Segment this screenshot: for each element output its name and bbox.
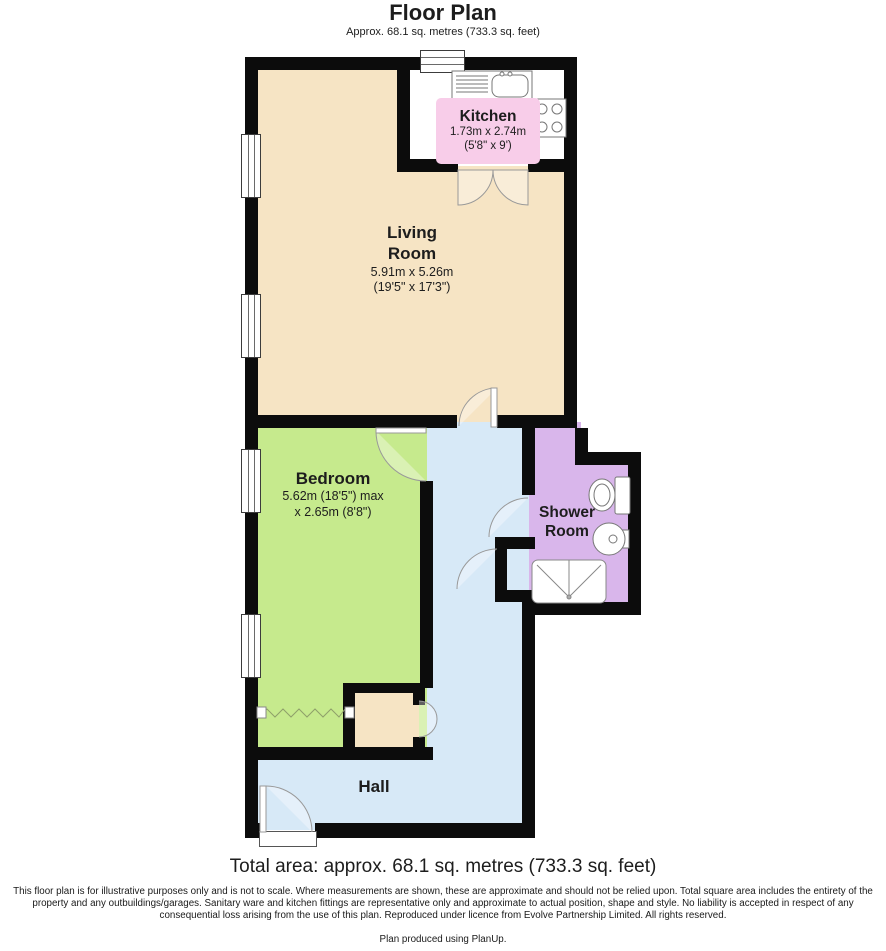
living-room-label: Living Room 5.91m x 5.26m (19'5" x 17'3"… xyxy=(371,222,454,295)
hall-nook-door xyxy=(457,549,497,589)
living-room-name-line1: Living xyxy=(371,222,454,243)
cupboard-door xyxy=(419,701,437,737)
kitchen-double-door xyxy=(458,170,528,205)
living-room-door xyxy=(459,388,497,427)
kitchen-dims-imperial: (5'8" x 9') xyxy=(436,140,540,154)
bedroom-label: Bedroom 5.62m (18'5") max x 2.65m (8'8") xyxy=(282,468,383,520)
shower-room-label: Shower Room xyxy=(539,503,595,542)
living-room-name-line2: Room xyxy=(371,243,454,264)
living-room-dims-metric: 5.91m x 5.26m xyxy=(371,265,454,280)
entrance-door xyxy=(260,786,312,832)
shower-room-name-line1: Shower xyxy=(539,503,595,522)
basin xyxy=(593,523,629,555)
hall-name: Hall xyxy=(358,776,389,797)
shower-room-door xyxy=(489,498,528,537)
bedroom-name: Bedroom xyxy=(282,468,383,489)
hall-label: Hall xyxy=(358,776,389,797)
bedroom-dims-line1: 5.62m (18'5") max xyxy=(282,489,383,504)
kitchen-label: Kitchen 1.73m x 2.74m (5'8" x 9') xyxy=(436,98,540,164)
toilet xyxy=(589,477,630,514)
kitchen-dims-metric: 1.73m x 2.74m xyxy=(436,126,540,140)
shower-tray xyxy=(532,560,606,603)
wardrobe-zigzag xyxy=(257,707,354,718)
kitchen-sink xyxy=(452,71,532,100)
kitchen-name: Kitchen xyxy=(436,108,540,126)
living-room-dims-imperial: (19'5" x 17'3") xyxy=(371,280,454,295)
bedroom-dims-line2: x 2.65m (8'8") xyxy=(282,505,383,520)
shower-room-name-line2: Room xyxy=(539,522,595,541)
